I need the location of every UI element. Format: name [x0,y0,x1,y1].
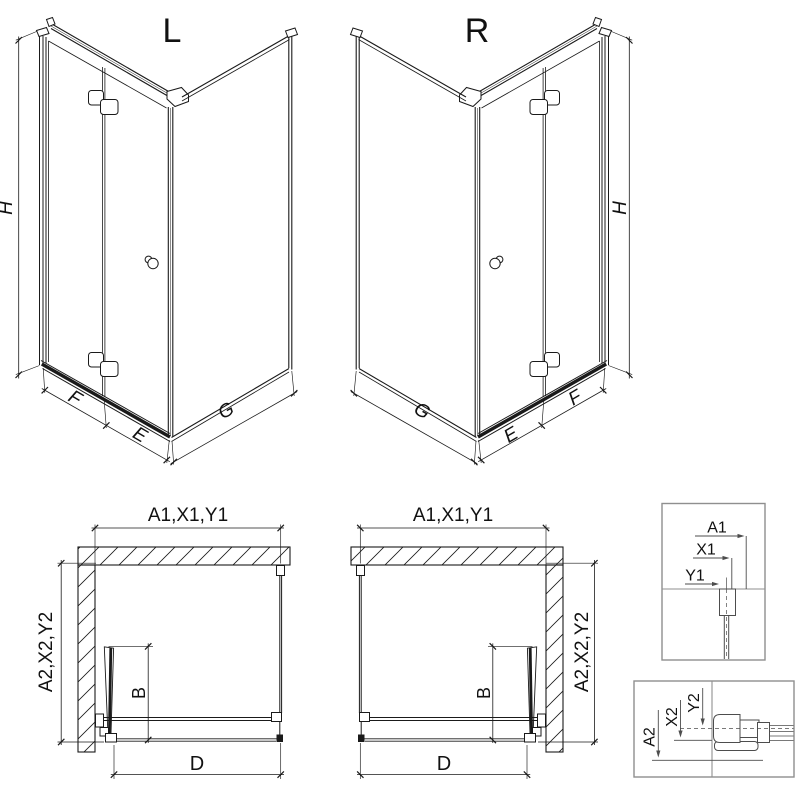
dim-label-h-right: H [610,201,631,215]
dim-label-h-left: H [0,201,17,215]
plan-wall-bracket [96,714,104,727]
side-wall-top-edge [182,36,290,98]
plan-glass-connector [272,713,282,722]
door-fold-line [102,67,105,397]
plan-left-top-wall [78,547,290,565]
iso-left-linework [16,18,298,466]
top-bar-inner [51,26,179,100]
plan-right-top-wall [351,547,563,565]
detail-profile-step [740,720,759,738]
side-wall-bottom-edge [172,369,290,438]
dim-label-g-left: G [215,398,238,424]
dim-label-b-left: B [129,687,149,699]
detail-label-y2: Y2 [686,693,703,713]
plan-glass-foot [277,735,284,743]
dim-fe-extensions [43,368,169,463]
side-wall-top-edge2 [182,40,290,102]
iso-right-linework [351,18,633,466]
dim-g-line [171,392,298,464]
detail-box-top: A1 X1 Y1 [662,504,765,661]
plan-right-side-wall [546,565,563,752]
detail-label-a1: A1 [707,520,727,537]
detail-box-bottom: A2 X2 Y2 [634,681,794,777]
plan-left-labels: A1,X1,Y1 A2,X2,Y2 B D [36,505,228,775]
dim-label-g-right: G [410,398,433,424]
dim-label-e-left: E [129,423,151,448]
detail-wall-profile [720,589,736,616]
dim-label-f-right: F [565,386,587,411]
side-wall-back-edge [289,34,292,370]
plan-pivot-block2 [106,734,117,743]
plan-side-glass [280,566,282,735]
detail-label-y1: Y1 [685,568,705,585]
plan-glass-top-bracket [277,566,285,576]
plan-left-side-wall [78,565,95,752]
plan-rail [103,718,271,721]
plan-right-labels: A1,X1,Y1 A2,X2,Y2 B D [413,505,593,775]
dim-h-extensions [16,32,40,375]
dim-label-d-left: D [190,753,204,775]
hinge-top-plate2 [101,100,119,115]
technical-drawing-page: L H F E G R H F E G [0,0,800,800]
wall-profile-cap [37,28,50,37]
corner-cap [167,88,189,107]
variant-title-right: R [465,12,490,50]
bottom-rail-bottom [43,369,171,442]
dim-label-a2x2y2-right: A2,X2,Y2 [572,612,593,692]
hinge-bottom-plate2 [101,362,119,377]
dim-label-a1x1y1-left: A1,X1,Y1 [148,505,228,526]
shower-enclosure-diagram: L H F E G R H F E G [0,0,800,800]
detail-glass-clamp [758,723,770,743]
dim-label-a2x2y2-left: A2,X2,Y2 [36,612,57,692]
detail-label-x1: X1 [696,542,716,559]
door-knob [148,258,158,268]
wall-profile [40,35,47,365]
variant-title-left: L [163,12,182,50]
plan-folded-door [109,648,111,740]
detail-label-x2: X2 [664,707,681,727]
dim-label-f-left: F [64,386,86,411]
dim-label-e-right: E [500,423,522,448]
iso-left-labels: L H F E G [0,12,238,448]
dim-label-b-right: B [474,687,494,699]
iso-right-labels: R H F E G [410,12,631,448]
dim-label-a1x1y1-right: A1,X1,Y1 [413,505,493,526]
plan-front-line [112,739,280,741]
dim-label-d-right: D [437,753,451,775]
detail-label-a2: A2 [642,727,659,747]
side-wall-cap [286,28,298,38]
door-glass-edge [49,41,167,362]
